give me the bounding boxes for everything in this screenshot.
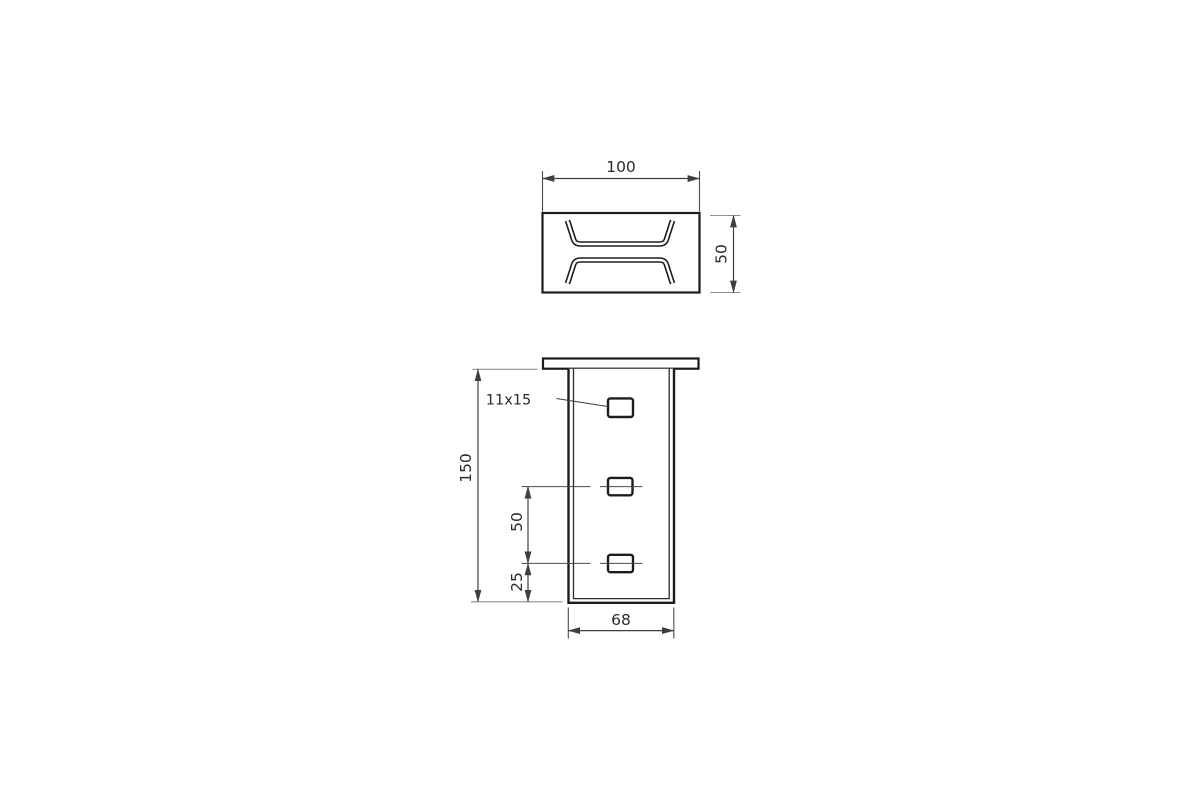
slot-size-label: 11x15 — [486, 393, 531, 409]
flange — [543, 359, 699, 369]
dim-top-width-label: 100 — [606, 158, 636, 176]
front-view: 11x15 150 50 — [457, 359, 699, 639]
dim-top-depth: 50 — [710, 216, 741, 293]
top-view: 100 50 — [543, 158, 741, 293]
dim-body-width: 68 — [568, 608, 674, 639]
dim-slot-bottom-offset-label: 25 — [508, 572, 526, 592]
technical-drawing: 100 50 11x15 — [0, 0, 1200, 800]
dim-top-depth-label: 50 — [712, 244, 730, 264]
slot-1 — [608, 398, 633, 417]
drawing-canvas: 100 50 11x15 — [0, 0, 1200, 800]
dim-top-width: 100 — [543, 158, 700, 212]
dim-total-height-label: 150 — [457, 453, 475, 483]
dim-slot-spacing: 50 — [508, 487, 528, 564]
dim-body-width-label: 68 — [611, 611, 631, 629]
dim-slot-spacing-label: 50 — [508, 512, 526, 532]
dim-slot-bottom-offset: 25 — [508, 563, 528, 601]
